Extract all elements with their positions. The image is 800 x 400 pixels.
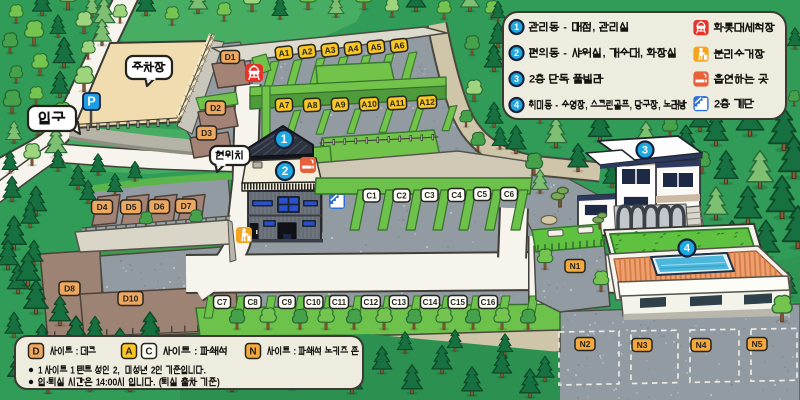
svg-text:C: C (145, 347, 152, 358)
svg-text:C5: C5 (477, 190, 488, 199)
svg-text:-: - (563, 22, 567, 34)
svg-text:D3: D3 (201, 128, 212, 138)
svg-text:2: 2 (282, 165, 289, 178)
svg-text:2: 2 (514, 48, 519, 58)
svg-text:-: - (563, 48, 567, 60)
svg-text:A4: A4 (347, 43, 359, 54)
svg-text:C12: C12 (363, 298, 378, 307)
svg-text:N1: N1 (570, 261, 581, 271)
svg-text:.: . (153, 377, 155, 389)
svg-text:A11: A11 (389, 98, 405, 109)
svg-text:C16: C16 (481, 298, 496, 307)
svg-text:C8: C8 (247, 298, 258, 307)
svg-text:A8: A8 (306, 100, 318, 111)
svg-text:): ) (217, 377, 220, 389)
svg-text:-: - (555, 100, 558, 112)
svg-text:P: P (87, 95, 95, 109)
svg-text:N2: N2 (580, 339, 591, 349)
svg-text:C10: C10 (306, 298, 321, 307)
svg-text:N: N (249, 347, 256, 358)
svg-text:D5: D5 (126, 202, 137, 212)
svg-text:C2: C2 (396, 191, 407, 200)
svg-text:C7: C7 (217, 298, 228, 307)
svg-text:D10: D10 (123, 294, 139, 304)
svg-text:C14: C14 (423, 298, 438, 307)
svg-text:1: 1 (281, 133, 288, 146)
svg-text::: : (194, 346, 197, 357)
svg-text:1: 1 (514, 22, 519, 32)
svg-text:4: 4 (684, 243, 691, 255)
svg-text:A7: A7 (278, 100, 290, 111)
svg-text:N5: N5 (752, 339, 763, 349)
svg-text:D6: D6 (154, 202, 165, 212)
svg-text:3: 3 (642, 145, 648, 157)
svg-text:,: , (585, 100, 588, 112)
svg-text:C11: C11 (332, 298, 347, 307)
svg-text:,: , (592, 22, 595, 34)
svg-text:A: A (125, 347, 132, 358)
svg-text:A1: A1 (278, 47, 290, 58)
svg-text:,: , (117, 365, 119, 376)
svg-text:A3: A3 (324, 44, 336, 55)
svg-text:N3: N3 (637, 340, 648, 350)
svg-text:,: , (658, 100, 661, 112)
svg-text:A12: A12 (419, 97, 435, 108)
svg-text::: : (76, 346, 79, 357)
svg-text:C15: C15 (450, 298, 465, 307)
svg-text:3: 3 (514, 74, 519, 84)
svg-text:N4: N4 (696, 340, 707, 350)
svg-text:2: 2 (529, 74, 535, 86)
svg-text:.: . (204, 365, 206, 376)
svg-text:A5: A5 (370, 41, 382, 52)
svg-text:D8: D8 (64, 284, 75, 294)
svg-text:,: , (640, 48, 643, 60)
svg-text:D: D (32, 347, 39, 358)
svg-text:D4: D4 (97, 202, 108, 212)
svg-text:C3: C3 (424, 191, 435, 200)
svg-text:1: 1 (70, 365, 75, 376)
svg-text:A2: A2 (301, 46, 313, 57)
svg-text:2: 2 (151, 365, 156, 376)
svg-text:C6: C6 (504, 190, 515, 199)
svg-text:,: , (630, 100, 633, 112)
svg-text:2: 2 (714, 98, 720, 110)
svg-text:C4: C4 (451, 191, 462, 200)
svg-text:C13: C13 (391, 298, 406, 307)
svg-text:C9: C9 (282, 298, 293, 307)
svg-text:A9: A9 (334, 99, 346, 110)
svg-text:A10: A10 (361, 99, 377, 110)
svg-text:,: , (603, 48, 606, 60)
svg-text:1: 1 (38, 365, 43, 376)
svg-text:C1: C1 (366, 191, 377, 200)
svg-text:D1: D1 (225, 52, 236, 62)
svg-text::: : (293, 346, 296, 357)
svg-text:D7: D7 (181, 201, 192, 211)
svg-text:0: 0 (112, 377, 117, 389)
svg-text:A6: A6 (393, 40, 405, 51)
svg-text:D2: D2 (210, 103, 221, 113)
svg-text:·: · (46, 377, 49, 389)
